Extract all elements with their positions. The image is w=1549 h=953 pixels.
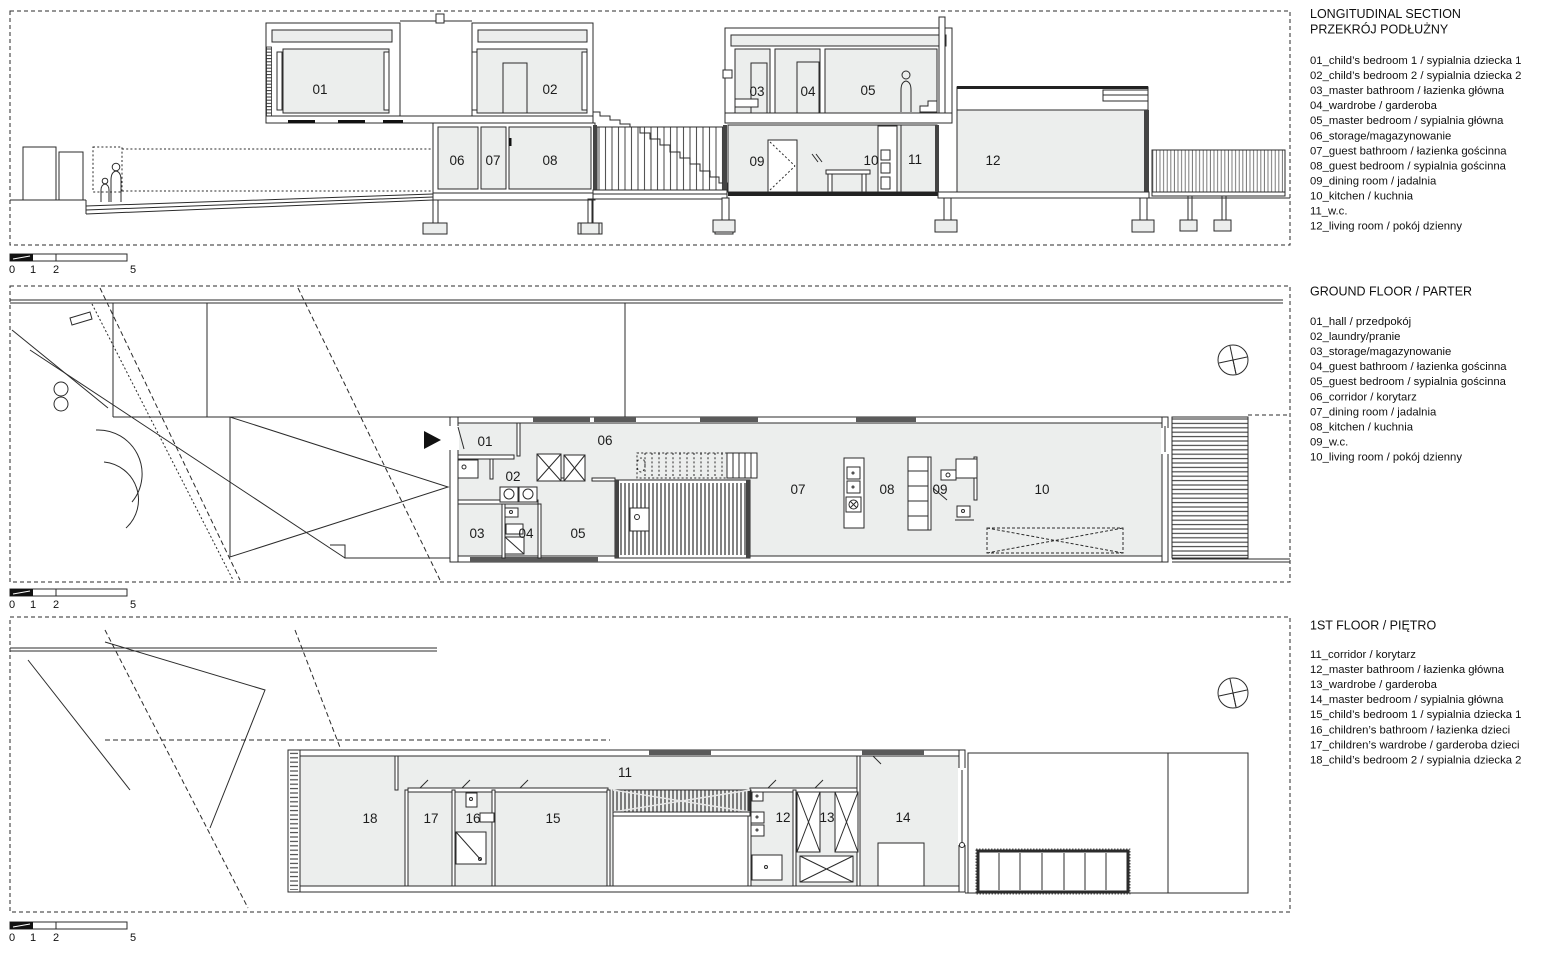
legend-item: 03_master bathroom / łazienka główna bbox=[1310, 85, 1505, 97]
legend-item: 10_living room / pokój dzienny bbox=[1310, 452, 1462, 464]
roof-band bbox=[478, 30, 587, 42]
bed bbox=[878, 843, 924, 886]
legend-title-pl: PRZEKRÓJ PODŁUŻNY bbox=[1310, 22, 1449, 37]
room-label-02: 02 bbox=[505, 469, 520, 484]
architectural-drawing-sheet: 01 02 03 04 05 06 07 08 09 10 11 12 bbox=[0, 0, 1549, 953]
room-label-03: 03 bbox=[749, 84, 764, 99]
screen-base bbox=[593, 190, 727, 194]
vent-strip bbox=[338, 120, 365, 123]
legend-item: 04_wardrobe / garderoba bbox=[1310, 100, 1438, 112]
legend-title: GROUND FLOOR / PARTER bbox=[1310, 285, 1472, 299]
ramp-line bbox=[86, 200, 433, 214]
north-symbol-icon bbox=[1218, 345, 1248, 375]
footing bbox=[935, 220, 957, 232]
gate-post bbox=[70, 312, 92, 325]
svg-text:0: 0 bbox=[9, 932, 15, 944]
room-label-01: 01 bbox=[477, 434, 492, 449]
internal-patio bbox=[615, 480, 750, 558]
north-symbol-icon bbox=[1218, 678, 1248, 708]
screen-post bbox=[593, 125, 597, 190]
corridor-wall bbox=[408, 788, 608, 792]
roof-band bbox=[272, 30, 392, 42]
drawing-canvas: 01 02 03 04 05 06 07 08 09 10 11 12 bbox=[0, 0, 1549, 953]
room-label-12: 12 bbox=[775, 810, 790, 825]
legend-item: 03_storage/magazynowanie bbox=[1310, 346, 1451, 358]
gate-swing-arc bbox=[104, 462, 138, 528]
neighbour-building bbox=[23, 147, 56, 200]
room-02-section bbox=[477, 49, 587, 113]
footing bbox=[423, 223, 447, 234]
shelf bbox=[881, 150, 890, 160]
section-cut-line bbox=[100, 288, 240, 580]
svg-text:0: 0 bbox=[9, 264, 15, 276]
room-label-12: 12 bbox=[985, 153, 1000, 168]
room-label-10: 10 bbox=[863, 153, 878, 168]
svg-text:2: 2 bbox=[53, 932, 59, 944]
kitchen-island bbox=[844, 458, 864, 528]
shelf bbox=[881, 177, 890, 189]
window-band bbox=[594, 417, 636, 422]
first-floor-plan: 18 17 16 15 11 12 13 14 bbox=[10, 617, 1290, 912]
ramp-line bbox=[86, 194, 433, 206]
svg-text:0: 0 bbox=[9, 599, 15, 611]
flue-mast bbox=[939, 17, 945, 113]
partition bbox=[517, 423, 520, 456]
laundry-sink bbox=[458, 460, 478, 478]
legend-item: 18_child’s bedroom 2 / sypialnia dziecka… bbox=[1310, 754, 1521, 766]
partition bbox=[452, 790, 455, 886]
legend-item: 08_kitchen / kuchnia bbox=[1310, 421, 1414, 433]
svg-text:2: 2 bbox=[53, 599, 59, 611]
window-frame bbox=[472, 52, 477, 110]
room-label-06: 06 bbox=[597, 433, 612, 448]
window-band bbox=[856, 417, 916, 422]
patio-void bbox=[613, 812, 750, 886]
legend-item: 12_master bathroom / łazienka główna bbox=[1310, 664, 1505, 676]
legend-item: 05_guest bedroom / sypialnia gościnna bbox=[1310, 376, 1507, 388]
footing bbox=[1132, 220, 1154, 232]
footing bbox=[1180, 220, 1197, 231]
person-figure-icon bbox=[101, 163, 121, 202]
room-label-08: 08 bbox=[542, 153, 557, 168]
room-label-09: 09 bbox=[749, 154, 764, 169]
roof-plane bbox=[1168, 753, 1248, 893]
legend-item: 12_living room / pokój dzienny bbox=[1310, 221, 1462, 233]
screen-post bbox=[723, 125, 727, 190]
legend-item: 05_master bedroom / sypialnia główna bbox=[1310, 115, 1504, 127]
legend-item: 09_dining room / jadalnia bbox=[1310, 175, 1437, 187]
planter bbox=[54, 397, 68, 411]
partition bbox=[405, 790, 408, 886]
wardrobe-unit bbox=[537, 454, 585, 481]
gate-swing-arc bbox=[96, 430, 142, 502]
legend-item: 01_child’s bedroom 1 / sypialnia dziecka… bbox=[1310, 55, 1521, 67]
footing bbox=[713, 220, 735, 232]
svg-text:5: 5 bbox=[130, 264, 136, 276]
room-label-02: 02 bbox=[542, 82, 557, 97]
entrance-arrow-icon bbox=[424, 431, 441, 449]
svg-text:5: 5 bbox=[130, 932, 136, 944]
legend-item: 06_corridor / korytarz bbox=[1310, 391, 1417, 403]
room-label-06: 06 bbox=[449, 153, 464, 168]
legend-item: 01_hall / przedpokój bbox=[1310, 316, 1411, 328]
planter bbox=[54, 382, 68, 396]
legend-item: 08_guest bedroom / sypialnia gościnna bbox=[1310, 160, 1507, 172]
table-leg bbox=[862, 174, 866, 192]
svg-text:1: 1 bbox=[30, 264, 36, 276]
roof-edge bbox=[957, 86, 1148, 89]
footing bbox=[1214, 220, 1231, 231]
room-label-04: 04 bbox=[800, 84, 816, 99]
dotted-guide bbox=[92, 304, 233, 580]
partition bbox=[538, 504, 541, 558]
ground-slab bbox=[433, 193, 595, 200]
ground-slab bbox=[938, 192, 1149, 198]
floor-slab bbox=[725, 113, 952, 123]
pile-column bbox=[1140, 198, 1147, 220]
skylight bbox=[976, 849, 1130, 894]
site-diagonal bbox=[28, 660, 130, 790]
window-band bbox=[700, 417, 758, 422]
scale-bar-section: 0 1 2 5 bbox=[9, 254, 136, 276]
south-wall bbox=[288, 886, 965, 892]
partition bbox=[793, 790, 796, 886]
legend-item: 11_w.c. bbox=[1310, 206, 1347, 218]
roof-band bbox=[731, 35, 946, 46]
legend-item: 02_child’s bedroom 2 / sypialnia dziecka… bbox=[1310, 70, 1521, 82]
legend-title: LONGITUDINAL SECTION bbox=[1310, 7, 1461, 21]
longitudinal-section-drawing: 01 02 03 04 05 06 07 08 09 10 11 12 bbox=[10, 11, 1290, 245]
vent-strip bbox=[288, 120, 315, 123]
ground-floor-plan: 01 02 03 04 05 06 07 08 09 10 bbox=[10, 286, 1290, 582]
room-label-08: 08 bbox=[879, 482, 894, 497]
window-band bbox=[470, 557, 598, 562]
room-label-15: 15 bbox=[545, 811, 560, 826]
deck-section bbox=[1152, 150, 1285, 192]
slatted-screen bbox=[597, 127, 723, 190]
wall bbox=[935, 125, 939, 192]
entry-door-gap bbox=[449, 426, 459, 450]
svg-text:5: 5 bbox=[130, 599, 136, 611]
house-interior bbox=[450, 417, 1168, 562]
room-05-section bbox=[825, 49, 937, 113]
legend-item: 07_guest bathroom / łazienka gościnna bbox=[1310, 145, 1507, 157]
legend-title: 1ST FLOOR / PIĘTRO bbox=[1310, 619, 1436, 633]
timber-deck bbox=[1172, 417, 1248, 558]
room-label-17: 17 bbox=[423, 811, 438, 826]
window-frame bbox=[582, 52, 587, 110]
svg-text:2: 2 bbox=[53, 264, 59, 276]
room-label-07: 07 bbox=[790, 482, 805, 497]
pile-column bbox=[944, 198, 951, 220]
table bbox=[826, 170, 870, 174]
carport-roof-outline bbox=[105, 642, 265, 828]
legend-item: 11_corridor / korytarz bbox=[1310, 649, 1416, 661]
room-label-11: 11 bbox=[908, 152, 922, 167]
room-label-09: 09 bbox=[932, 482, 947, 497]
door-mark bbox=[509, 138, 512, 146]
deck-frame bbox=[1152, 192, 1285, 196]
room-label-14: 14 bbox=[895, 810, 911, 825]
partition bbox=[592, 478, 615, 481]
room-12-section bbox=[957, 110, 1148, 192]
legend-longitudinal-section: LONGITUDINAL SECTION PRZEKRÓJ PODŁUŻNY 0… bbox=[1310, 7, 1521, 233]
partition bbox=[395, 756, 398, 790]
pile-column bbox=[722, 198, 729, 220]
deck-post bbox=[1188, 196, 1192, 220]
section-cut-line bbox=[298, 288, 440, 580]
partition bbox=[492, 790, 495, 886]
room-label-16: 16 bbox=[465, 811, 480, 826]
west-wall-hatch bbox=[290, 752, 298, 890]
room-label-11: 11 bbox=[618, 765, 632, 780]
window-band bbox=[649, 750, 711, 755]
footing bbox=[581, 223, 599, 234]
neighbour-building bbox=[59, 152, 83, 200]
section-cut-line bbox=[105, 630, 248, 908]
room-label-04: 04 bbox=[518, 526, 534, 541]
legend-item: 09_w.c. bbox=[1310, 436, 1348, 448]
legend-item: 16_children’s bathroom / łazienka dzieci bbox=[1310, 724, 1510, 736]
legend-item: 02_laundry/pranie bbox=[1310, 331, 1400, 343]
window-band bbox=[862, 750, 924, 755]
room-label-07: 07 bbox=[485, 153, 500, 168]
toilet bbox=[505, 508, 518, 517]
table-leg bbox=[828, 174, 832, 192]
legend-item: 10_kitchen / kuchnia bbox=[1310, 191, 1414, 203]
room-label-05: 05 bbox=[570, 526, 585, 541]
svg-text:1: 1 bbox=[30, 599, 36, 611]
legend-first-floor: 1ST FLOOR / PIĘTRO 11_corridor / korytar… bbox=[1310, 619, 1521, 767]
deck-post bbox=[1222, 196, 1226, 220]
wall bbox=[1144, 110, 1149, 192]
screen-base bbox=[593, 194, 727, 199]
legend-item: 14_master bedroom / sypialnia główna bbox=[1310, 694, 1504, 706]
room-label-10: 10 bbox=[1034, 482, 1049, 497]
legend-item: 17_children’s wardrobe / garderoba dziec… bbox=[1310, 739, 1520, 751]
shelf bbox=[881, 163, 890, 173]
window-band bbox=[533, 417, 590, 422]
room-label-18: 18 bbox=[362, 811, 377, 826]
window-frame bbox=[277, 52, 282, 110]
pile-column bbox=[433, 200, 438, 223]
svg-text:1: 1 bbox=[30, 932, 36, 944]
bath-bench bbox=[735, 99, 758, 107]
partition bbox=[607, 790, 610, 886]
legend-item: 15_child’s bedroom 1 / sypialnia dziecka… bbox=[1310, 709, 1521, 721]
scale-bar-ground: 0 1 2 5 bbox=[9, 589, 136, 611]
scale-bar-first: 0 1 2 5 bbox=[9, 922, 136, 944]
base-strip bbox=[728, 192, 938, 196]
legend-item: 07_dining room / jadalnia bbox=[1310, 406, 1437, 418]
floor-slab bbox=[266, 116, 593, 123]
room-label-13: 13 bbox=[819, 810, 834, 825]
internal-stair bbox=[613, 790, 750, 816]
kitchen-wall-unit bbox=[908, 457, 928, 530]
room-01-section bbox=[283, 49, 389, 113]
legend-ground-floor: GROUND FLOOR / PARTER 01_hall / przedpok… bbox=[1310, 285, 1507, 464]
partition bbox=[490, 459, 493, 479]
glass-door bbox=[768, 140, 797, 192]
chimney bbox=[436, 14, 444, 23]
wall-box bbox=[723, 70, 732, 78]
site-diagonal bbox=[30, 350, 345, 558]
legend-item: 04_guest bathroom / łazienka gościnna bbox=[1310, 361, 1507, 373]
legend-item: 06_storage/magazynowanie bbox=[1310, 130, 1451, 142]
room-label-01: 01 bbox=[312, 82, 327, 97]
room-label-03: 03 bbox=[469, 526, 484, 541]
terrain-step bbox=[330, 545, 375, 558]
room-label-05: 05 bbox=[860, 83, 875, 98]
corridor-wall bbox=[750, 788, 860, 792]
vent-strip bbox=[383, 120, 403, 123]
partition bbox=[458, 455, 514, 459]
ramp-line bbox=[86, 197, 433, 210]
window-frame bbox=[384, 52, 389, 110]
legend-item: 13_wardrobe / garderoba bbox=[1310, 679, 1438, 691]
facade-ladder-hatch bbox=[267, 47, 272, 116]
carport-canopy bbox=[230, 417, 448, 557]
